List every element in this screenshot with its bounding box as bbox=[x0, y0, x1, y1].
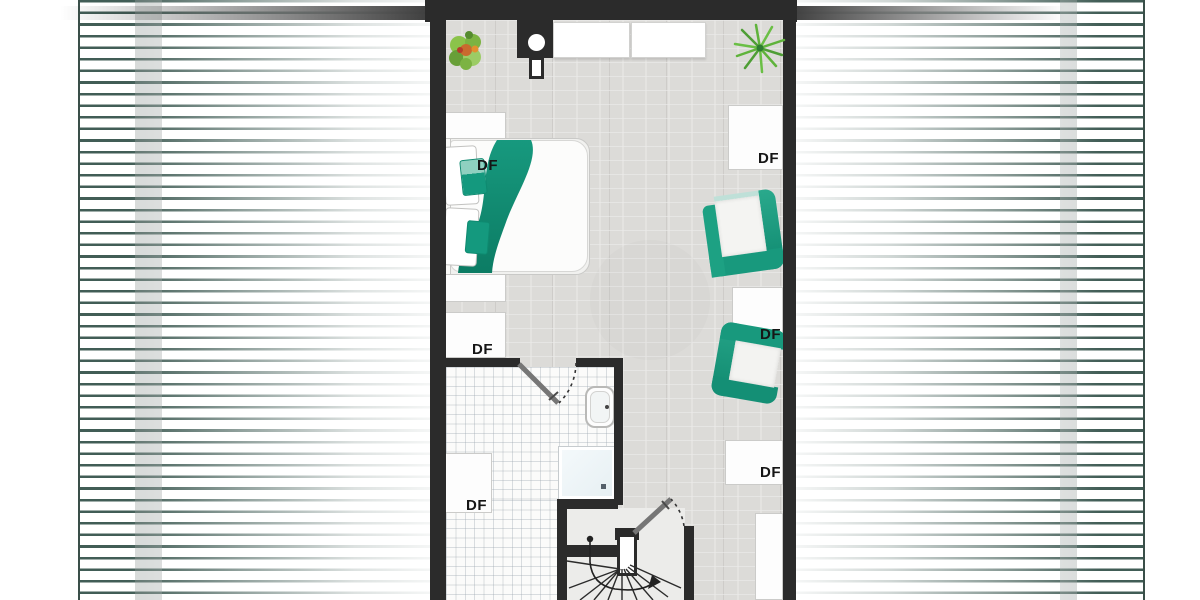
wardrobe-right bbox=[631, 22, 706, 58]
right-wall bbox=[783, 20, 796, 600]
armchair-upper bbox=[701, 188, 785, 278]
top-wall-fade-left bbox=[60, 6, 428, 20]
stair-wall-right bbox=[684, 526, 694, 600]
accent-pillow-bottom bbox=[465, 220, 491, 255]
roof-hatch-right bbox=[795, 0, 1145, 600]
white-area-bottom-right bbox=[755, 513, 783, 600]
chimney-flue-icon bbox=[528, 34, 545, 51]
double-bed bbox=[436, 138, 590, 275]
roof-window-label: DF bbox=[760, 326, 781, 344]
bathroom-floor-lower bbox=[446, 500, 558, 600]
stair-wall-stub bbox=[567, 545, 617, 557]
sink-tap bbox=[605, 405, 609, 409]
roof-hatch-left bbox=[78, 0, 432, 600]
floor-plan: DF DF DF DF DF DF bbox=[0, 0, 1200, 600]
armchair-lower-seat bbox=[729, 340, 781, 387]
top-wall bbox=[425, 0, 797, 22]
roof-window-label: DF bbox=[760, 464, 781, 482]
top-wall-fade-right bbox=[792, 6, 1065, 20]
stair-wall-left bbox=[557, 509, 567, 600]
left-wall bbox=[430, 20, 446, 600]
armchair-upper-seat bbox=[714, 195, 766, 257]
sink bbox=[585, 386, 615, 428]
bathroom-wall-right bbox=[614, 358, 623, 505]
roof-window-label: DF bbox=[472, 341, 493, 359]
shower bbox=[558, 446, 616, 500]
roof-window-label: DF bbox=[477, 157, 498, 175]
roof-window-label: DF bbox=[758, 150, 779, 168]
bathroom-wall-top-left bbox=[432, 358, 520, 367]
shower-drain bbox=[601, 484, 606, 489]
shower-pan bbox=[562, 450, 612, 496]
stair-newel-post bbox=[617, 534, 637, 576]
roof-window-label: DF bbox=[466, 497, 487, 515]
wardrobe-left bbox=[553, 22, 630, 58]
wall-below-shower bbox=[557, 499, 618, 509]
radiator-icon bbox=[529, 57, 544, 79]
